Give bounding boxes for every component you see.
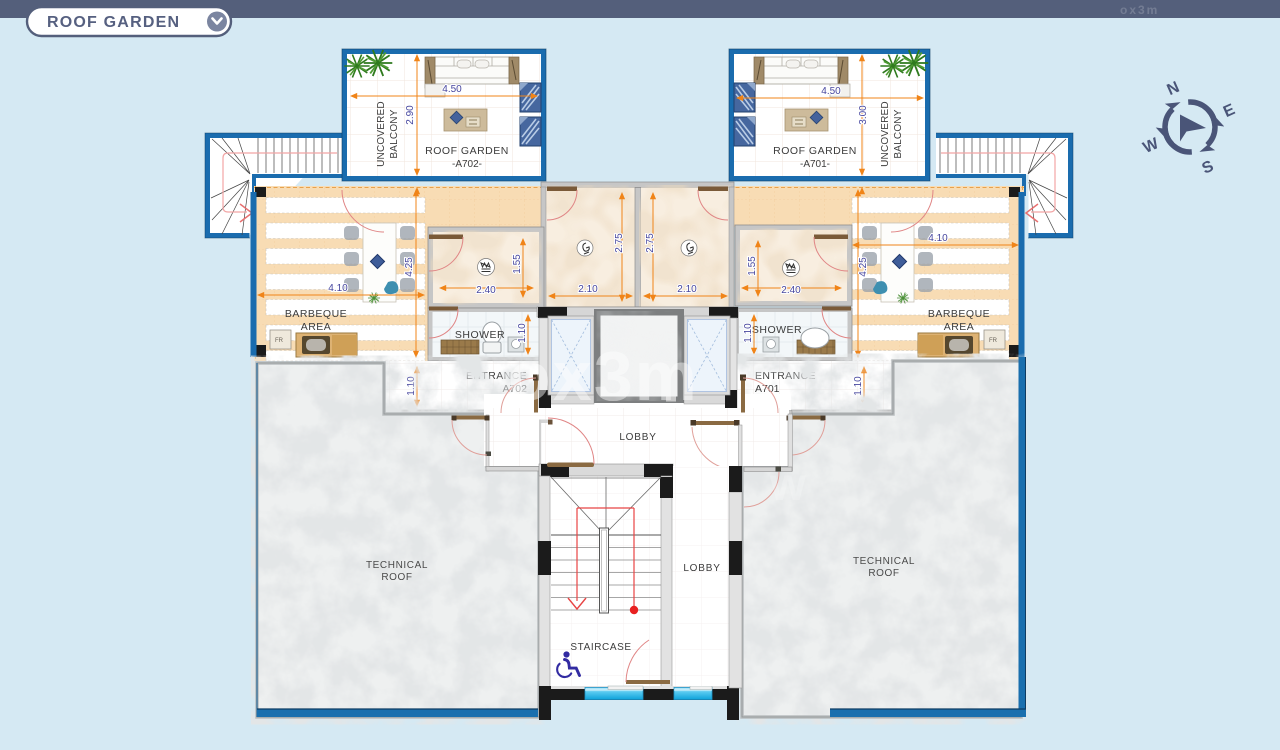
svg-text:4.50: 4.50 (442, 84, 462, 95)
svg-text:UNCOVERED: UNCOVERED (376, 101, 387, 167)
svg-text:ROOF GARDEN: ROOF GARDEN (773, 145, 857, 157)
svg-text:2.10: 2.10 (677, 284, 697, 295)
svg-text:1.55: 1.55 (512, 254, 523, 274)
svg-text:ox3m: ox3m (1120, 3, 1159, 17)
svg-text:2.10: 2.10 (578, 284, 598, 295)
svg-text:2.75: 2.75 (645, 233, 656, 253)
svg-text:FR: FR (989, 338, 998, 344)
svg-text:ox3m: ox3m (508, 337, 699, 415)
svg-text:1.10: 1.10 (853, 376, 864, 396)
svg-text:FR: FR (275, 338, 284, 344)
svg-text:TECHNICAL: TECHNICAL (853, 556, 915, 567)
svg-text:A701: A701 (755, 383, 780, 395)
svg-text:SHOWER: SHOWER (455, 329, 505, 341)
svg-text:SHOWER: SHOWER (752, 324, 802, 336)
svg-text:ROOF: ROOF (868, 568, 899, 579)
svg-text:3.00: 3.00 (858, 105, 869, 125)
svg-text:TECHNICAL: TECHNICAL (366, 560, 428, 571)
svg-text:ENTRANCE: ENTRANCE (755, 370, 816, 382)
svg-text:2.75: 2.75 (614, 233, 625, 253)
svg-text:ROOF GARDEN: ROOF GARDEN (425, 145, 509, 157)
svg-text:1.55: 1.55 (747, 256, 758, 276)
svg-text:STAIRCASE: STAIRCASE (570, 642, 631, 653)
svg-text:-A702-: -A702- (452, 159, 482, 170)
svg-text:1.10: 1.10 (406, 376, 417, 396)
svg-text:-A701-: -A701- (800, 159, 830, 170)
svg-text:AREA: AREA (301, 321, 332, 333)
svg-text:LOBBY: LOBBY (619, 432, 656, 443)
svg-text:4.10: 4.10 (328, 283, 348, 294)
svg-text:BARBEQUE: BARBEQUE (928, 308, 990, 320)
svg-text:2.40: 2.40 (781, 285, 801, 296)
svg-text:2.90: 2.90 (405, 105, 416, 125)
svg-text:1.10: 1.10 (743, 323, 754, 343)
svg-text:4.10: 4.10 (928, 233, 948, 244)
svg-text:4.50: 4.50 (821, 86, 841, 97)
svg-text:BALCONY: BALCONY (389, 109, 400, 158)
svg-text:BARBEQUE: BARBEQUE (285, 308, 347, 320)
svg-text:BALCONY: BALCONY (893, 109, 904, 158)
svg-text:2.40: 2.40 (476, 285, 496, 296)
svg-text:4.25: 4.25 (404, 257, 415, 277)
svg-text:ROOF GARDEN: ROOF GARDEN (47, 14, 180, 31)
svg-text:LOBBY: LOBBY (683, 563, 720, 574)
svg-text:AREA: AREA (944, 321, 975, 333)
svg-text:w: w (769, 458, 808, 510)
svg-text:4.25: 4.25 (858, 257, 869, 277)
svg-text:ROOF: ROOF (381, 572, 412, 583)
svg-text:UNCOVERED: UNCOVERED (880, 101, 891, 167)
